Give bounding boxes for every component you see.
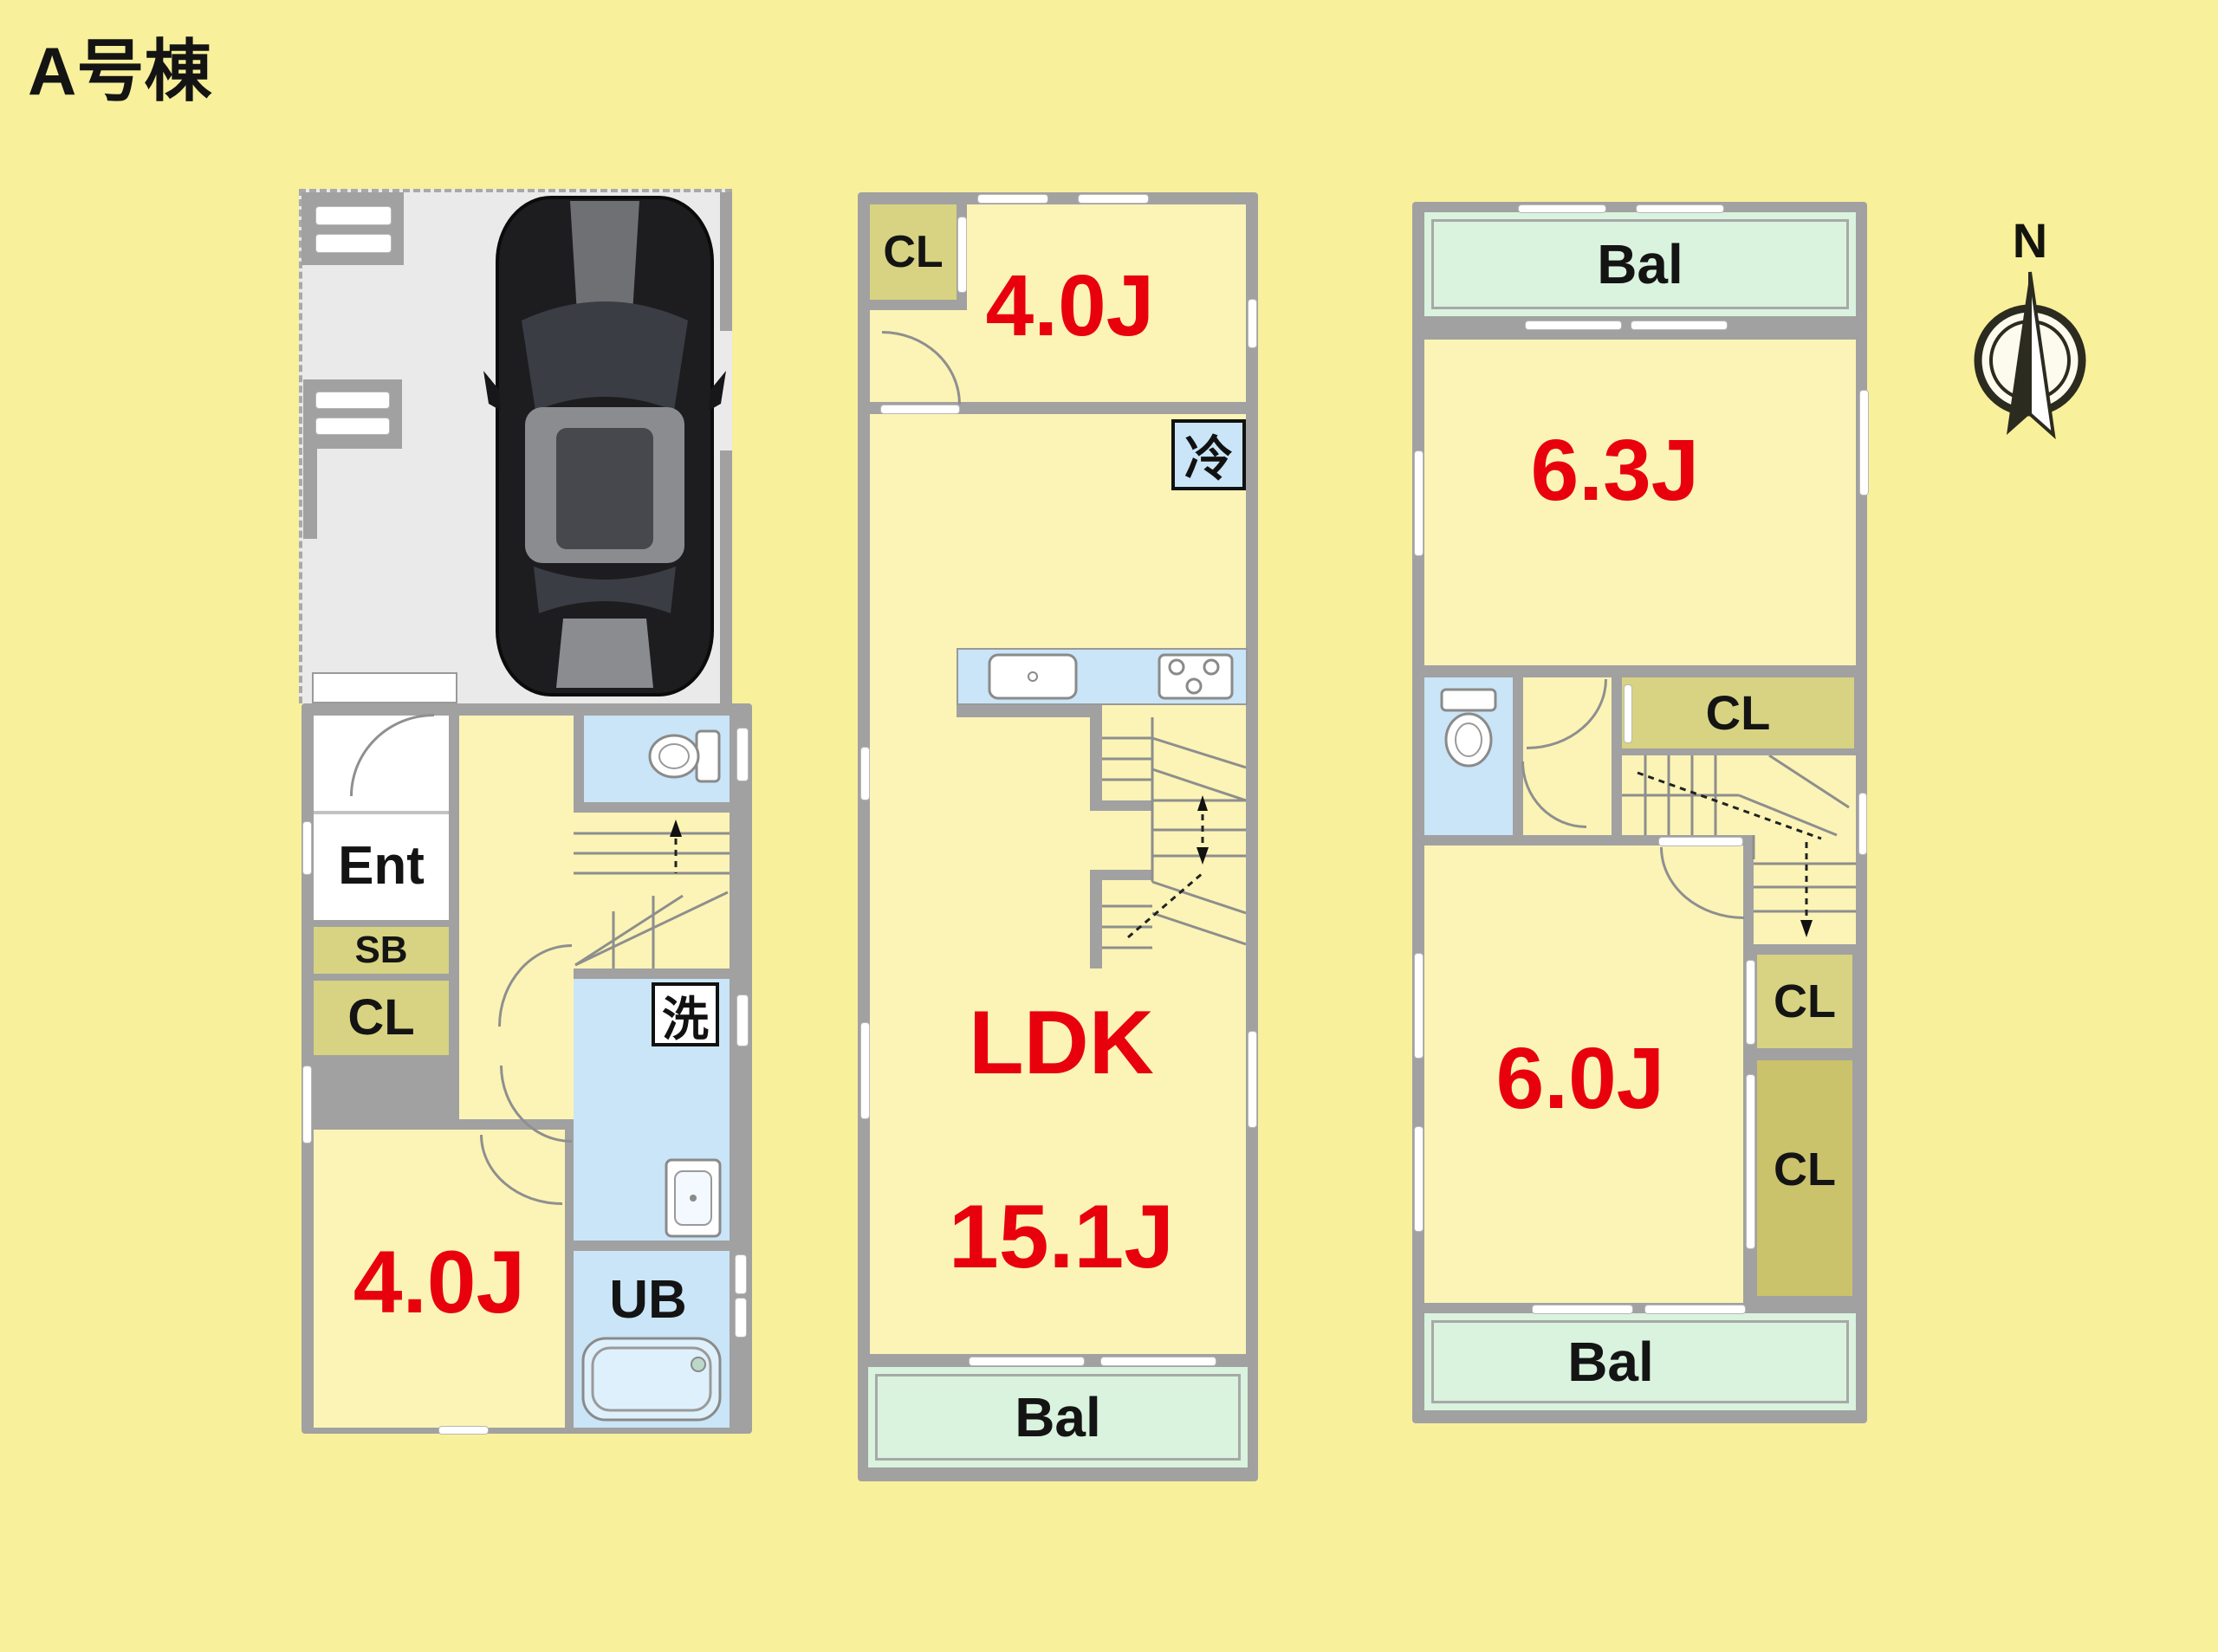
window-marker xyxy=(1248,1031,1257,1128)
room-label-laundry: 洗 xyxy=(662,981,709,1049)
page-title: A号棟 xyxy=(28,17,211,114)
room-label-4-0j-2f: 4.0J xyxy=(918,256,1222,355)
window-marker xyxy=(860,1022,870,1119)
sink-icon xyxy=(664,1157,723,1239)
room-label-ub: UB xyxy=(574,1261,723,1339)
window-marker xyxy=(977,194,1048,204)
toilet-icon xyxy=(646,728,724,788)
window-marker xyxy=(1859,390,1869,496)
window-marker xyxy=(1414,1126,1424,1232)
room-label-cl-3f-hall: CL xyxy=(1622,677,1854,748)
window-marker xyxy=(1078,194,1149,204)
window-marker xyxy=(302,821,312,875)
window-marker xyxy=(736,994,749,1046)
window-marker xyxy=(969,1357,1085,1366)
porch-step xyxy=(312,672,457,703)
window-marker xyxy=(1631,321,1728,330)
louver-window xyxy=(315,234,392,253)
garage-louver-wall xyxy=(303,379,402,449)
window-marker xyxy=(1858,793,1867,855)
stairs-treads-1f xyxy=(574,813,730,969)
room-label-bal-2f: Bal xyxy=(868,1367,1248,1467)
window-marker xyxy=(860,747,870,800)
room-label-ent: Ent xyxy=(314,814,449,918)
window-marker xyxy=(1746,960,1755,1045)
window-marker xyxy=(1414,450,1424,556)
laundry-box: 洗 xyxy=(652,982,719,1046)
window-marker xyxy=(1746,1074,1755,1249)
louver-window xyxy=(315,392,390,409)
room-label-6-0j: 6.0J xyxy=(1424,1027,1736,1130)
room-label-cl-3f-upper: CL xyxy=(1757,955,1852,1048)
wall-segment xyxy=(957,705,1102,717)
room-label-bal-3f-south: Bal xyxy=(1424,1313,1797,1410)
window-marker xyxy=(1100,1357,1216,1366)
room-label-cl-3f-lower: CL xyxy=(1757,1126,1852,1213)
window-marker xyxy=(1414,953,1424,1059)
room-label-4-0j-1f: 4.0J xyxy=(314,1230,565,1334)
window-marker xyxy=(302,1066,312,1143)
window-marker xyxy=(736,728,749,781)
louver-window xyxy=(315,206,392,225)
room-label-6-3j: 6.3J xyxy=(1424,420,1806,520)
room-label-ldk-size: 15.1J xyxy=(901,1189,1222,1286)
room-label-sb: SB xyxy=(314,927,449,974)
wall-segment xyxy=(1090,878,1102,969)
garage-louver-wall xyxy=(302,192,404,265)
car-top-view xyxy=(483,192,726,700)
room-label-ldk: LDK xyxy=(910,994,1213,1092)
louver-window xyxy=(315,418,390,435)
toilet-icon xyxy=(1435,686,1502,773)
hallway-1f xyxy=(459,716,574,1119)
window-marker xyxy=(735,1298,747,1338)
window-marker xyxy=(1525,321,1622,330)
window-marker xyxy=(438,1426,489,1435)
kitchen-sink-icon xyxy=(988,653,1078,700)
wall-segment xyxy=(303,449,317,539)
fridge-box: 冷 xyxy=(1171,419,1246,490)
north-arrow-icon xyxy=(1963,265,2097,445)
stairs-treads-2f xyxy=(1102,717,1246,969)
window-marker xyxy=(880,405,960,414)
room-label-cl-1f: CL xyxy=(314,981,449,1055)
room-label-bal-3f-north: Bal xyxy=(1424,212,1856,316)
wall-segment xyxy=(1090,717,1102,800)
window-marker xyxy=(1248,299,1257,348)
room-label-fridge: 冷 xyxy=(1184,420,1233,490)
window-marker xyxy=(735,1254,747,1294)
stove-icon xyxy=(1158,653,1234,700)
compass-north-label: N xyxy=(1956,215,2104,265)
window-marker xyxy=(1658,837,1743,846)
compass-rose: N xyxy=(1956,215,2104,445)
bathtub-icon xyxy=(580,1336,724,1422)
